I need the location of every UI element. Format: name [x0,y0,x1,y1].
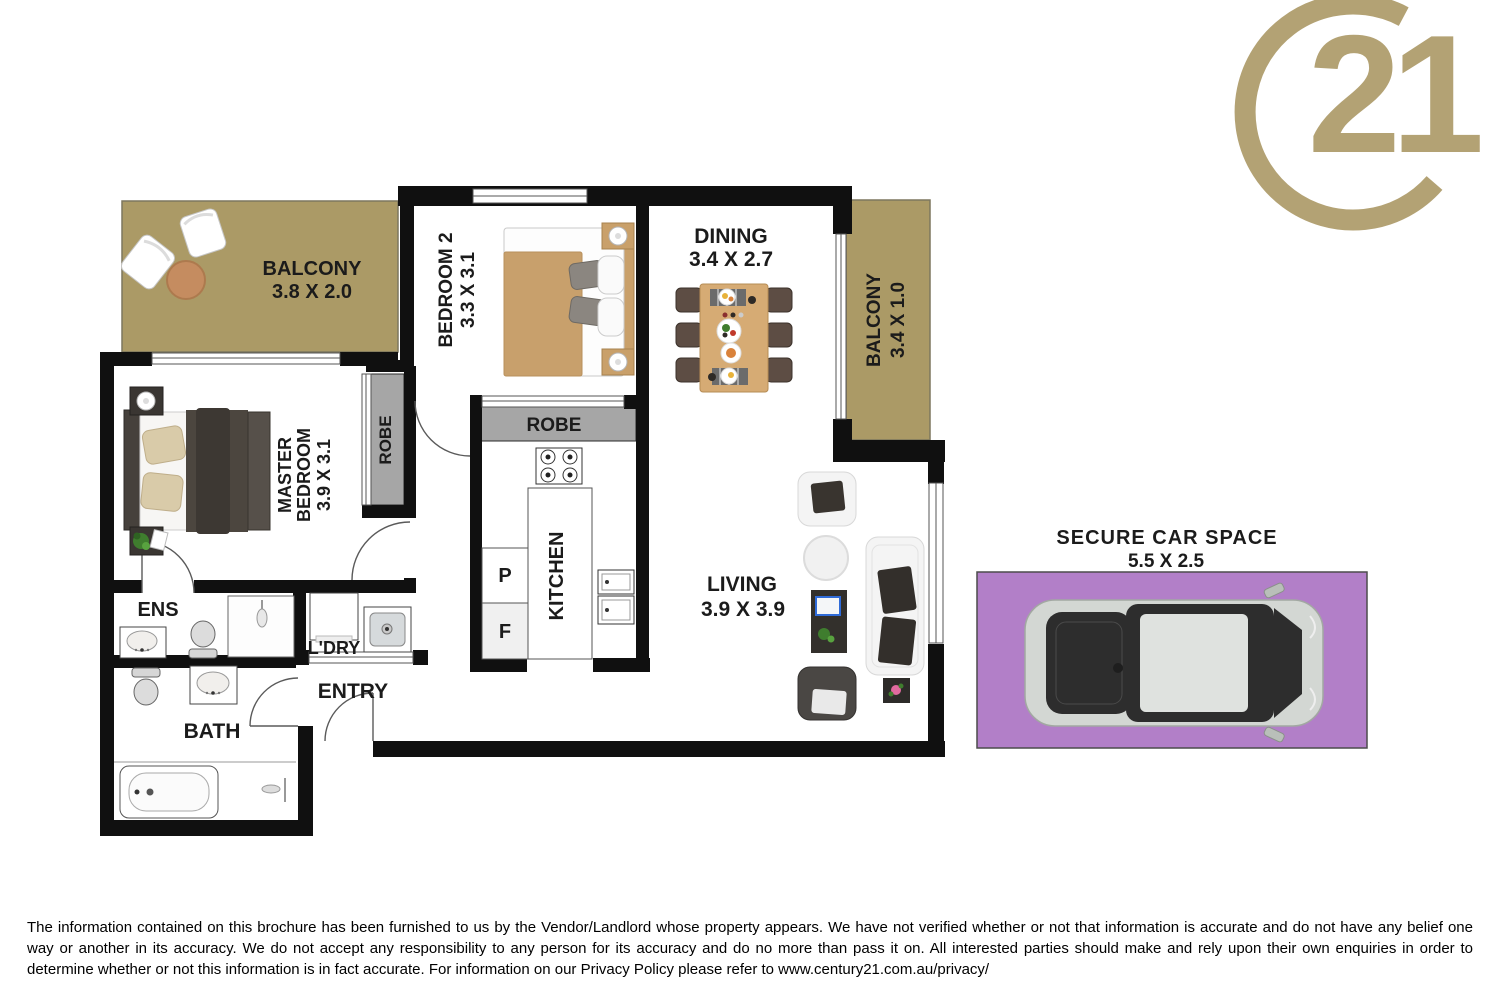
label-balcony-top: BALCONY [263,258,363,280]
century21-logo: 21 [1245,0,1480,220]
ottoman-icon [804,536,848,580]
label-car-space-dims: 5.5 X 2.5 [1128,551,1204,572]
sliding-door-robe-master [362,374,371,505]
label-bedroom2: BEDROOM 2 [436,232,457,347]
logo-number: 21 [1308,0,1480,188]
laundry-sink-icon [364,607,411,652]
bedside-table-icon [602,223,634,249]
vanity-sink-icon [190,666,237,704]
brochure-page: 21 [0,0,1500,1000]
label-car-space-title: SECURE CAR SPACE [1056,527,1277,549]
window-living-right [929,483,943,643]
bathtub-icon [120,766,218,818]
label-entry: ENTRY [318,680,388,703]
door-master [352,522,410,580]
floor-plan-graphic: 21 [0,0,1500,1000]
car-icon [1025,582,1323,743]
label-living: LIVING [707,573,777,596]
master-bed-icon [124,408,270,534]
sliding-door-balcony-top [152,353,340,364]
label-pantry: P [498,565,511,587]
vanity-sink-icon [120,627,166,658]
label-master-dims: 3.9 X 3.1 [314,439,334,511]
outdoor-table-icon [167,261,205,299]
label-dining: DINING [694,225,768,248]
door-bath [250,678,298,726]
label-balcony-right-dims: 3.4 X 1.0 [888,282,909,358]
oven-icon [598,570,634,624]
label-laundry: L'DRY [308,638,361,658]
label-bedroom2-dims: 3.3 X 3.1 [458,252,479,328]
bedside-table-icon [130,527,168,555]
label-balcony-right: BALCONY [864,273,885,367]
armchair-icon [798,472,856,526]
label-robe-bedroom2: ROBE [527,415,582,436]
sliding-door-balcony-right [836,234,846,419]
label-master-line1: MASTER [275,437,295,513]
stove-icon [536,448,582,484]
label-ens: ENS [137,599,178,621]
toilet-icon [132,668,160,705]
label-fridge: F [499,621,511,643]
tv-unit-icon [811,590,847,653]
toilet-icon [189,621,217,658]
bedside-table-icon [602,349,634,375]
shower-head-icon [262,778,285,802]
label-robe-master: ROBE [376,415,395,464]
sofa-icon [866,537,924,675]
label-dining-dims: 3.4 X 2.7 [689,248,773,271]
label-kitchen: KITCHEN [546,532,568,621]
disclaimer-text: The information contained on this brochu… [27,917,1473,980]
label-master-line2: BEDROOM [294,428,314,522]
dining-table-icon [676,284,792,392]
shower-icon [228,596,294,657]
label-living-dims: 3.9 X 3.9 [701,598,785,621]
side-table-icon [883,678,910,703]
door-bedroom2 [415,401,470,456]
washing-machine-icon [310,593,358,642]
armchair-icon [798,667,856,720]
sliding-door-robe-bedroom2 [482,396,624,407]
label-bath: BATH [184,720,241,743]
bedside-table-icon [130,387,163,415]
window-top [473,189,587,203]
label-balcony-top-dims: 3.8 X 2.0 [272,281,352,303]
